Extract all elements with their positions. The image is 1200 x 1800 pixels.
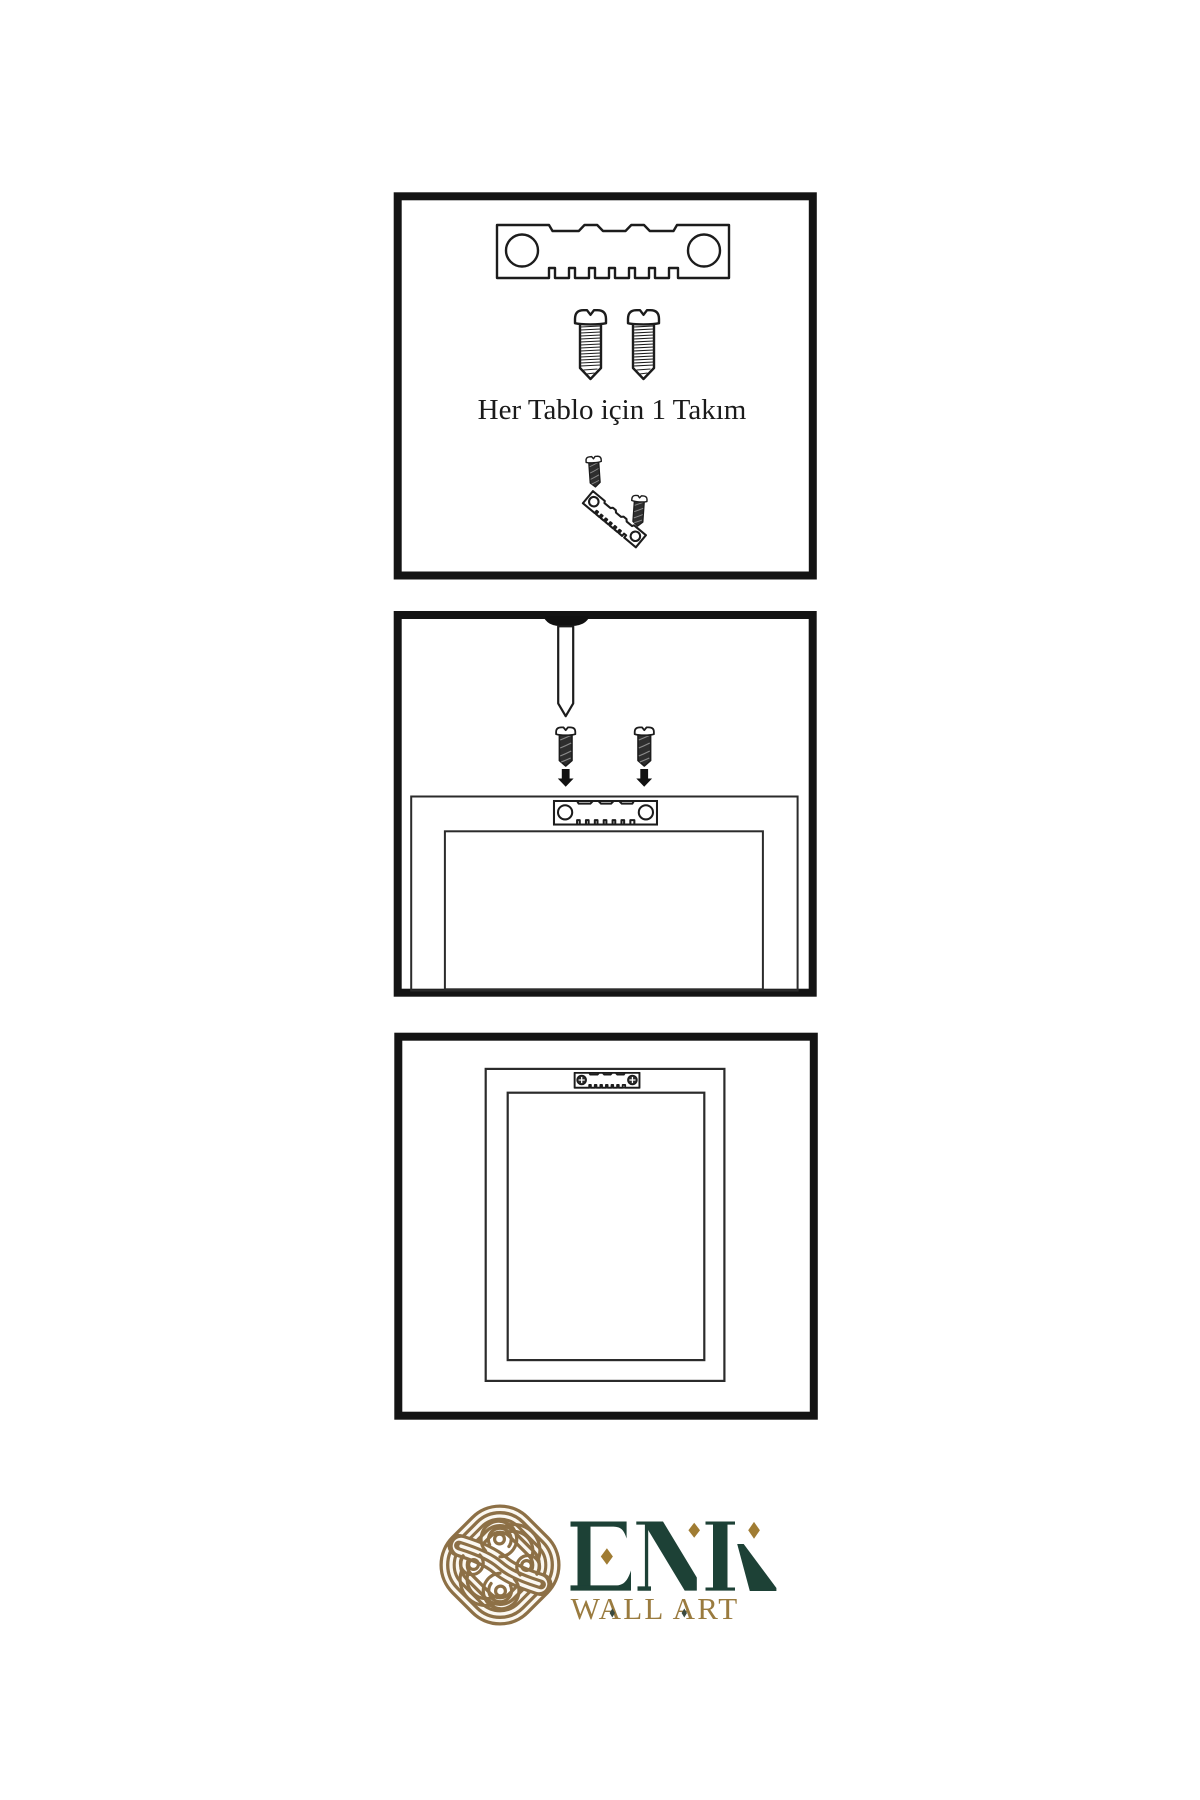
svg-text:Her Tablo için 1 Takım: Her Tablo için 1 Takım (478, 394, 747, 426)
svg-text:WALL ART: WALL ART (571, 1591, 740, 1626)
